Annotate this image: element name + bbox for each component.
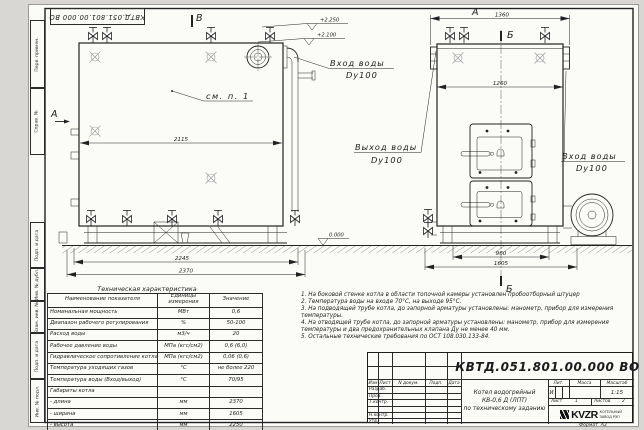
kvzr-logo-subtitle: КОТЕЛЬНЫЙ ЗАВОД РЭП [600,410,622,418]
kvzr-logo-text: KVZR [571,409,598,421]
inlet-pipe [283,46,315,226]
note-4: 4. На отводящей трубе котла, до запорной… [301,320,633,333]
svg-text:см. п. 1: см. п. 1 [206,91,250,101]
row-utv: Утв. [369,419,378,424]
dim-2245: 2245 [175,256,190,262]
kvzr-logo: KVZR КОТЕЛЬНЫЙ ЗАВОД РЭП [549,406,633,423]
view-label-a: А [471,7,479,18]
sheet-value: 1 [575,399,578,404]
pipe-labels: Вход воды Dy100 Выход воды Dy100 Вход во… [294,51,625,173]
dim-2370: 2370 [179,269,194,275]
lifting-mark [206,52,217,63]
lit-header: Лит. [548,381,569,386]
sheet-label: Лист [551,399,562,404]
svg-text:Dy100: Dy100 [371,155,403,165]
svg-text:Dy100: Dy100 [346,70,378,80]
margin-cell-podp-data-2: Подп. и дата [30,333,45,379]
col-ndocum: N докум. [392,381,425,386]
margin-cell-podp-data-1: Подп. и дата [30,222,45,268]
scale-value: 1:15 [600,390,634,396]
title-block: Изм Лист N докум. Подп. Дата Разраб. Про… [367,352,633,423]
label-inlet-top: Вход воды Dy100 [294,57,394,80]
sheets-label: Листов [594,399,610,404]
table-row: - ширинамм1605 [48,409,263,420]
table-row: Расход водым3/ч20 [48,330,263,341]
svg-text:Выход воды: Выход воды [355,142,417,152]
table-row: Гидравлическое сопротивление котлаМПа (к… [48,352,263,363]
table-row: Номинальная мощностьМВт0,6 [48,307,263,318]
scale-header: Масштаб [600,381,634,386]
margin-cell-inv-dubl: Инв. № дубл. [30,268,45,301]
dim-1605: 1605 [494,261,509,267]
dim-2115: 2115 [174,137,189,143]
table-row: Рабочее давление водыМПа (кгс/см2)0,6 (6… [48,341,263,352]
format-label: Формат А3 [553,423,633,428]
margin-cell-perv-primen: Перв. примен. [30,20,45,88]
fan-blower [563,194,616,245]
lifting-mark [206,173,217,184]
sheets-value: 2 [622,399,625,404]
table-row: Температура воды (Вход/выход)°С70/95 [48,375,263,386]
table-row: Диапазон рабочего регулирования%50-100 [48,318,263,329]
support-frame [59,222,287,243]
svg-text:Dy100: Dy100 [576,163,608,173]
ground-level [62,246,632,254]
row-razrab: Разраб. [369,387,386,392]
table-row: Температура уходящих газов°Сне более 220 [48,363,263,374]
tech-table-header: Наименование показателя Единицы измерени… [48,293,263,307]
label-outlet: Выход воды Dy100 [354,51,436,165]
col-data: Дата [447,381,461,386]
view-marker-v: В [196,13,203,24]
elev-0000: 0.000 [329,233,345,239]
dim-1260: 1260 [493,81,508,87]
row-nkontr: Н.контр. [369,413,389,418]
dim-960: 960 [496,251,507,257]
front-support-frame [440,226,560,243]
view-marker-a: А [50,109,58,120]
elevation-marks: +2.250 +2.100 0.000 [258,18,349,246]
row-prov: Пров. [369,394,382,399]
doc-number: КВТД.051.801.00.000 ВО [462,355,633,378]
note-5: 5. Остальные технические требования по О… [301,334,633,341]
kvzr-logo-icon [560,410,569,419]
lifting-mark [90,52,101,63]
lower-door [461,181,535,226]
note-1: 1. На боковой стенке котла в области топ… [301,292,633,299]
mass-header: Масса [569,381,600,386]
tech-table-title: Техническая характеристика [47,285,247,293]
label-inlet-right: Вход воды Dy100 [561,71,625,173]
side-view: 2115 2245 2370 см. п. 1 В А [50,13,315,277]
engineering-drawing-sheet: .cn{stroke:#222;fill:none} .thick{stroke… [0,0,644,430]
table-row: - высотамм2250 [48,420,263,430]
col-izm: Изм [368,381,378,386]
upper-door [461,124,535,178]
margin-cell-inv-podl: Инв. № подл. [30,379,45,423]
lifting-mark [90,126,101,137]
table-row: - длинамм2370 [48,397,263,408]
note-3: 3. На подводящей трубе котла, до запорно… [301,306,633,319]
section-marker-b-top: Б [507,30,514,41]
product-name: Котел водогрейный КВ-0,6 Д (ЛПТ) по техн… [462,381,547,423]
note-2: 2. Температура воды на входе 70°С, на вы… [301,299,633,306]
top-stamp-number: КВТД.051.801.00.000 ВО [49,13,145,21]
margin-cell-sprav-no: Справ. № [30,88,45,155]
svg-text:Вход воды: Вход воды [330,58,385,68]
tech-table: Наименование показателя Единицы измерени… [47,293,263,430]
table-row: Габариты котла [48,386,263,397]
dim-1360: 1360 [495,13,510,19]
col-list: Лист [378,381,392,386]
margin-cell-vzam-inv: Взам. инв. № [30,301,45,333]
manhole-flange [244,44,272,72]
elev-2250: +2.250 [320,18,340,24]
lit-value: И [548,390,555,396]
callout-see-note: см. п. 1 [171,90,253,101]
top-stamp: КВТД.051.801.00.000 ВО [50,8,145,25]
notes-block: 1. На боковой стенке котла в области топ… [301,292,633,342]
elev-2100: +2.100 [317,33,337,39]
svg-text:Вход воды: Вход воды [562,151,617,161]
col-podp: Подп. [425,381,447,386]
row-tkontr: Т.контр. [369,400,388,405]
